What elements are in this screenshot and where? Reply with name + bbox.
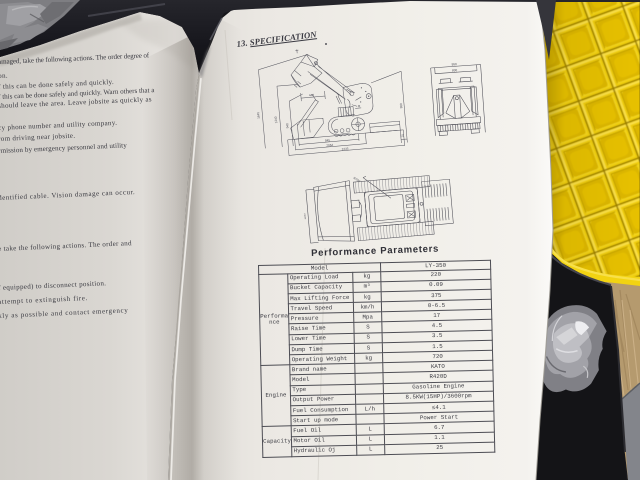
svg-text:2235: 2235 — [342, 147, 349, 152]
svg-text:1845: 1845 — [256, 112, 261, 119]
svg-text:880: 880 — [399, 103, 403, 109]
svg-text:830: 830 — [452, 68, 458, 72]
svg-text:950: 950 — [451, 62, 457, 66]
svg-text:75: 75 — [401, 133, 405, 137]
svg-text:1240: 1240 — [274, 116, 279, 123]
svg-text:448: 448 — [309, 93, 315, 97]
svg-text:845: 845 — [325, 138, 331, 142]
svg-text:2064: 2064 — [326, 143, 333, 148]
svg-text:940: 940 — [285, 123, 289, 129]
